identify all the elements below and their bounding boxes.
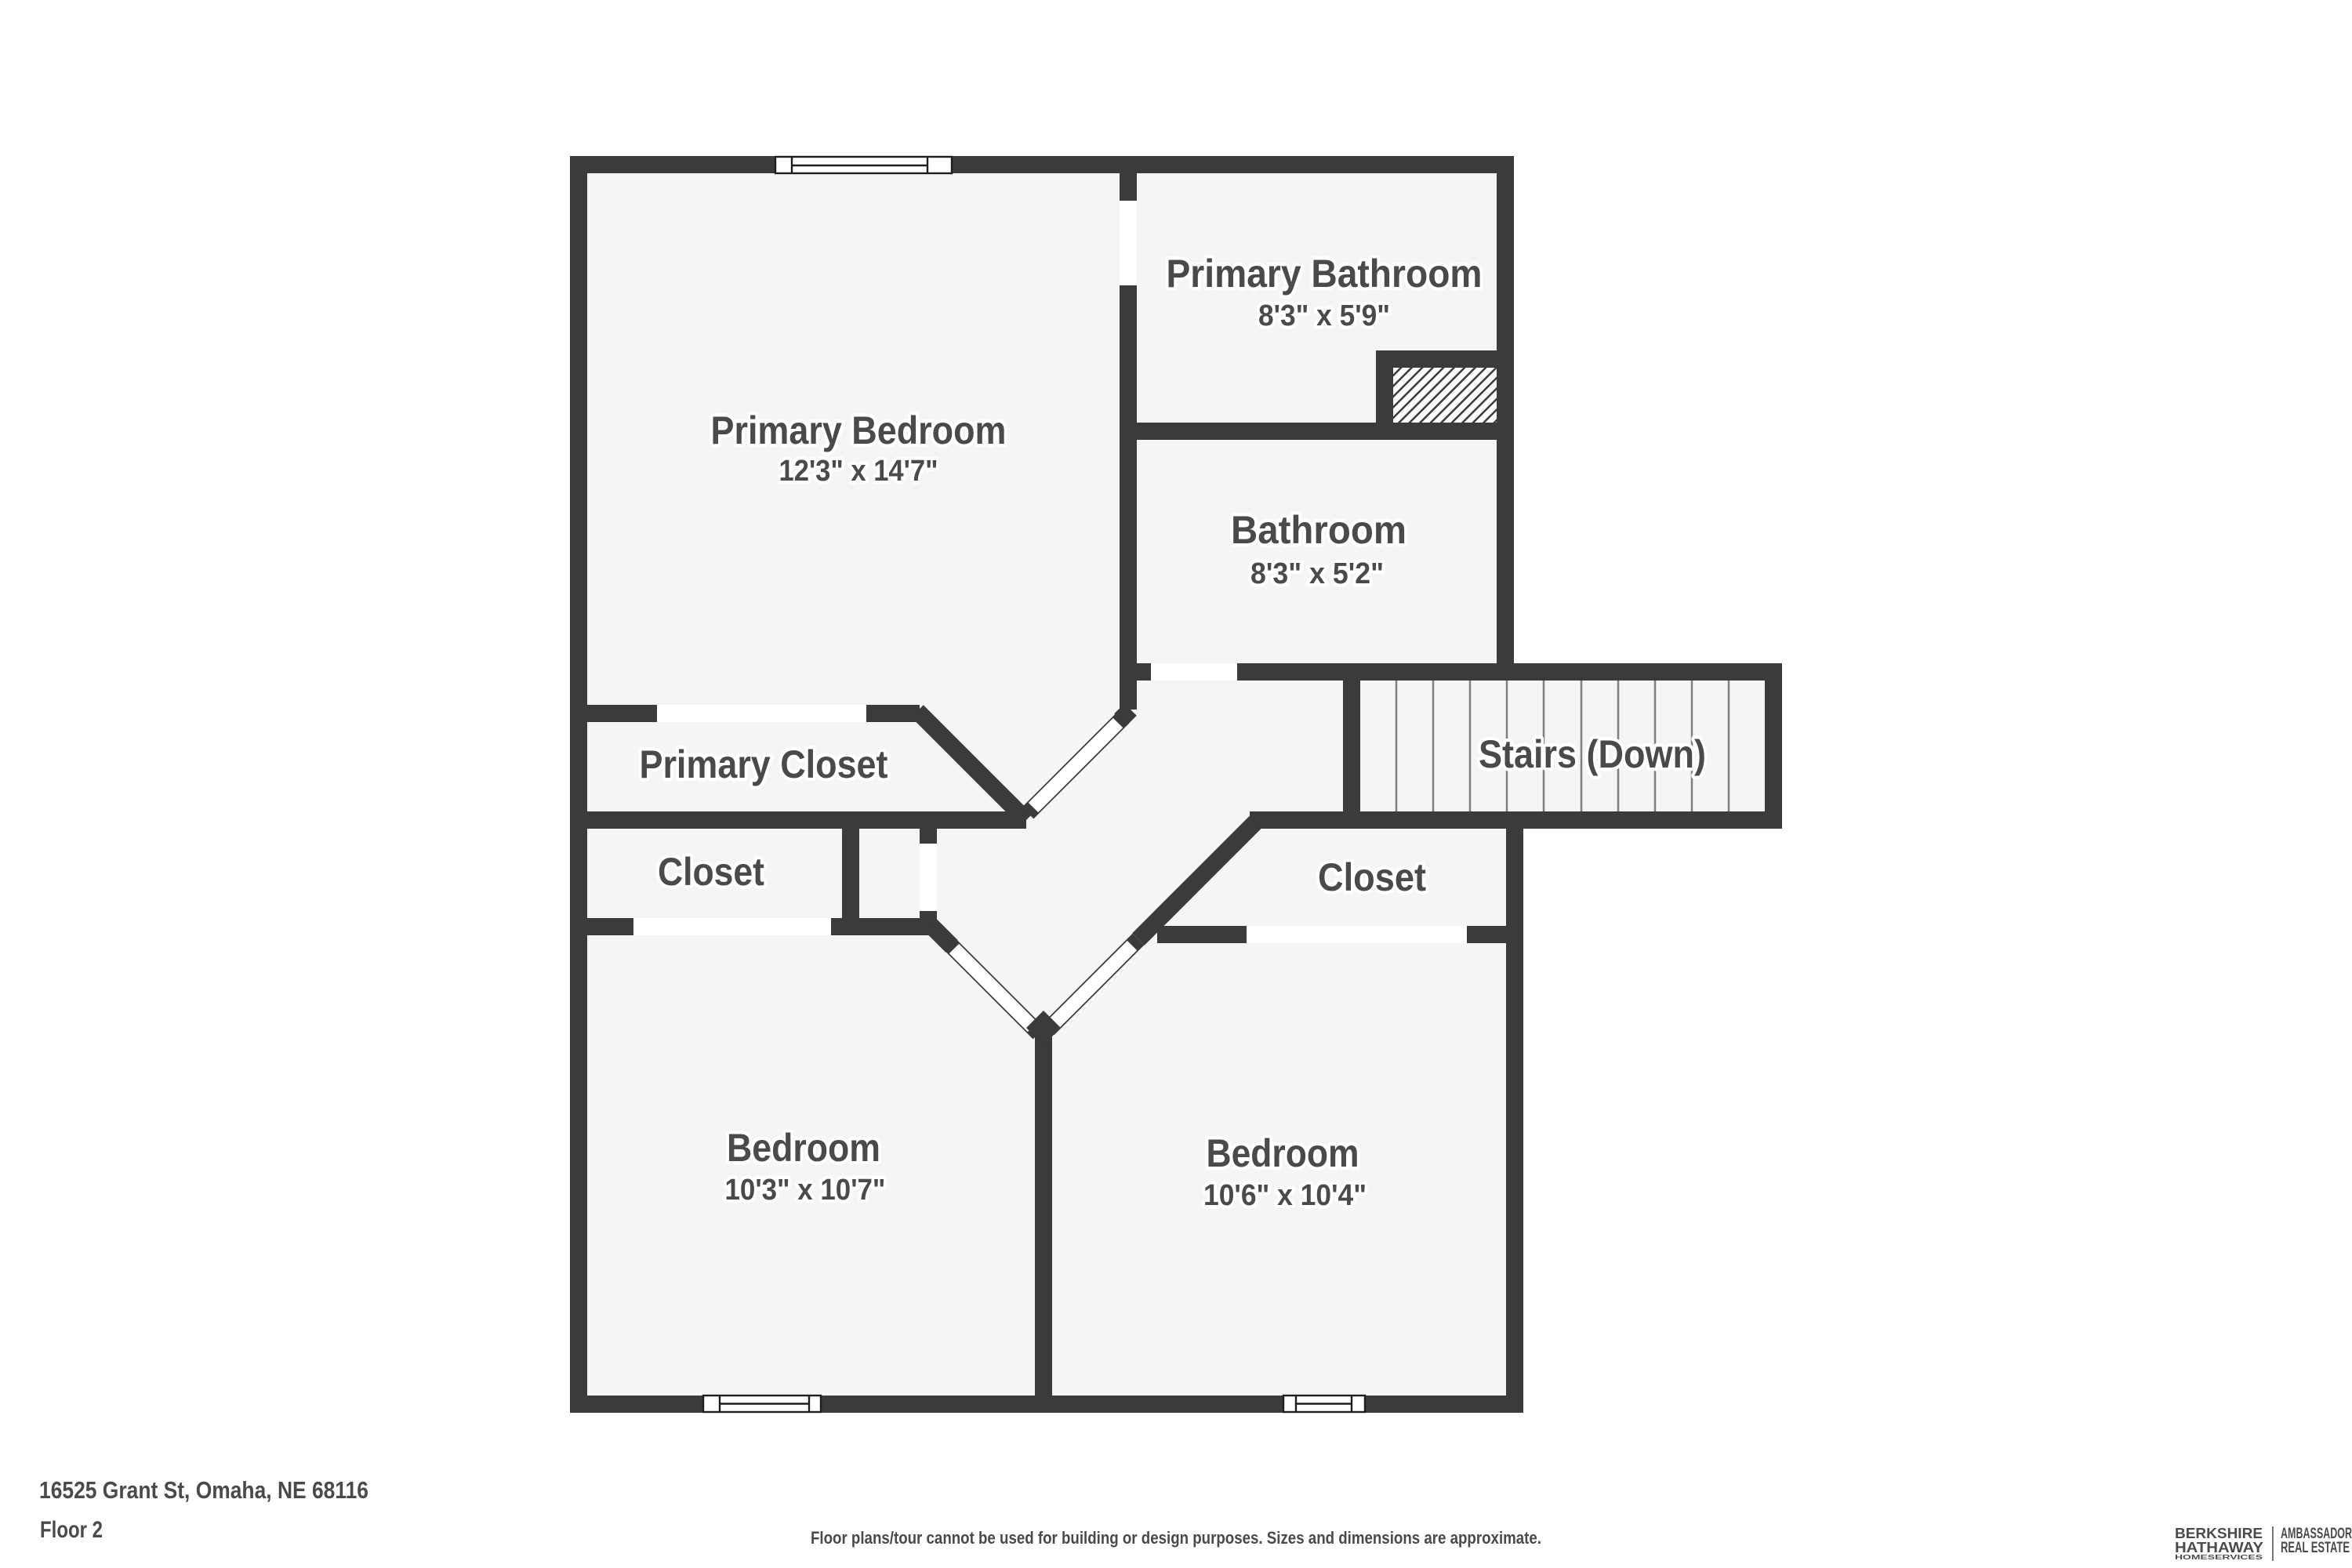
- svg-text:Bathroom: Bathroom: [1231, 508, 1406, 552]
- svg-text:Bedroom: Bedroom: [1207, 1131, 1359, 1175]
- svg-text:REAL ESTATE: REAL ESTATE: [2281, 1539, 2350, 1556]
- svg-text:Floor plans/tour cannot be use: Floor plans/tour cannot be used for buil…: [811, 1528, 1541, 1548]
- svg-text:12'3" x 14'7": 12'3" x 14'7": [779, 455, 938, 488]
- svg-text:Stairs (Down): Stairs (Down): [1479, 732, 1706, 776]
- svg-text:Primary Closet: Primary Closet: [640, 742, 888, 786]
- svg-text:HOMESERVICES: HOMESERVICES: [2175, 1554, 2263, 1561]
- svg-text:Floor 2: Floor 2: [40, 1517, 103, 1543]
- svg-text:Primary Bedroom: Primary Bedroom: [711, 408, 1007, 452]
- svg-text:8'3" x 5'2": 8'3" x 5'2": [1250, 557, 1384, 590]
- svg-text:HATHAWAY: HATHAWAY: [2175, 1540, 2263, 1555]
- svg-text:8'3" x 5'9": 8'3" x 5'9": [1258, 299, 1390, 332]
- svg-text:Primary Bathroom: Primary Bathroom: [1167, 252, 1483, 296]
- svg-text:10'6" x 10'4": 10'6" x 10'4": [1203, 1179, 1367, 1212]
- svg-text:Closet: Closet: [1318, 855, 1426, 899]
- svg-text:10'3" x 10'7": 10'3" x 10'7": [725, 1174, 886, 1207]
- svg-text:BERKSHIRE: BERKSHIRE: [2175, 1526, 2263, 1541]
- svg-text:Closet: Closet: [658, 850, 764, 894]
- svg-text:16525 Grant St, Omaha, NE 6811: 16525 Grant St, Omaha, NE 68116: [39, 1476, 368, 1504]
- svg-text:Bedroom: Bedroom: [727, 1126, 880, 1170]
